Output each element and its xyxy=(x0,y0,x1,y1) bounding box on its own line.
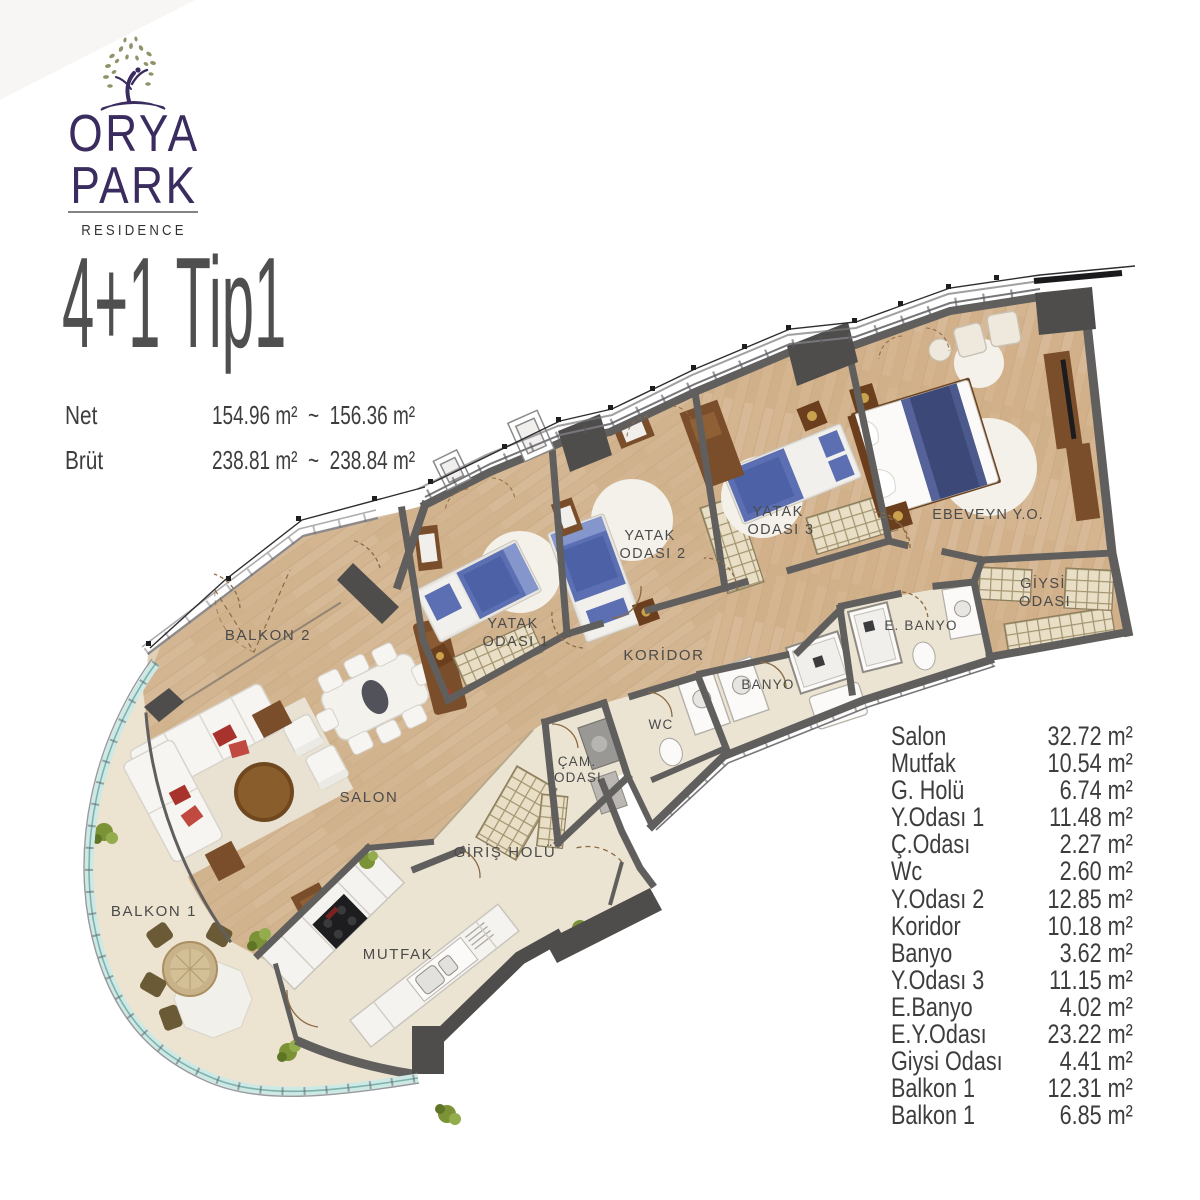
svg-text:ODASI: ODASI xyxy=(1019,594,1071,610)
svg-text:4+1 Tip1: 4+1 Tip1 xyxy=(62,231,286,375)
svg-text:BALKON 1: BALKON 1 xyxy=(111,903,197,920)
svg-text:E. BANYO: E. BANYO xyxy=(884,618,957,633)
svg-text:GİRİŞ HOLÜ: GİRİŞ HOLÜ xyxy=(454,843,557,861)
svg-text:ODASI 3: ODASI 3 xyxy=(747,522,814,538)
svg-text:ÇAM.: ÇAM. xyxy=(558,754,597,769)
svg-text:ODASI 2: ODASI 2 xyxy=(619,546,686,562)
svg-text:WC: WC xyxy=(649,717,674,732)
svg-text:SALON: SALON xyxy=(340,789,399,806)
svg-text:MUTFAK: MUTFAK xyxy=(363,946,433,963)
svg-text:PARK: PARK xyxy=(70,157,197,215)
svg-text:GİYSİ: GİYSİ xyxy=(1020,574,1066,592)
svg-text:EBEVEYN Y.O.: EBEVEYN Y.O. xyxy=(932,507,1043,523)
svg-text:BANYO: BANYO xyxy=(741,677,794,692)
svg-text:ORYA: ORYA xyxy=(68,105,199,163)
svg-text:ODASI: ODASI xyxy=(554,770,602,785)
svg-text:YATAK: YATAK xyxy=(624,528,675,544)
svg-text:KORİDOR: KORİDOR xyxy=(623,646,704,664)
svg-text:BALKON 2: BALKON 2 xyxy=(225,627,311,644)
svg-text:YATAK: YATAK xyxy=(487,616,538,632)
svg-text:YATAK: YATAK xyxy=(752,504,803,520)
svg-text:ODASI 1: ODASI 1 xyxy=(482,634,549,650)
